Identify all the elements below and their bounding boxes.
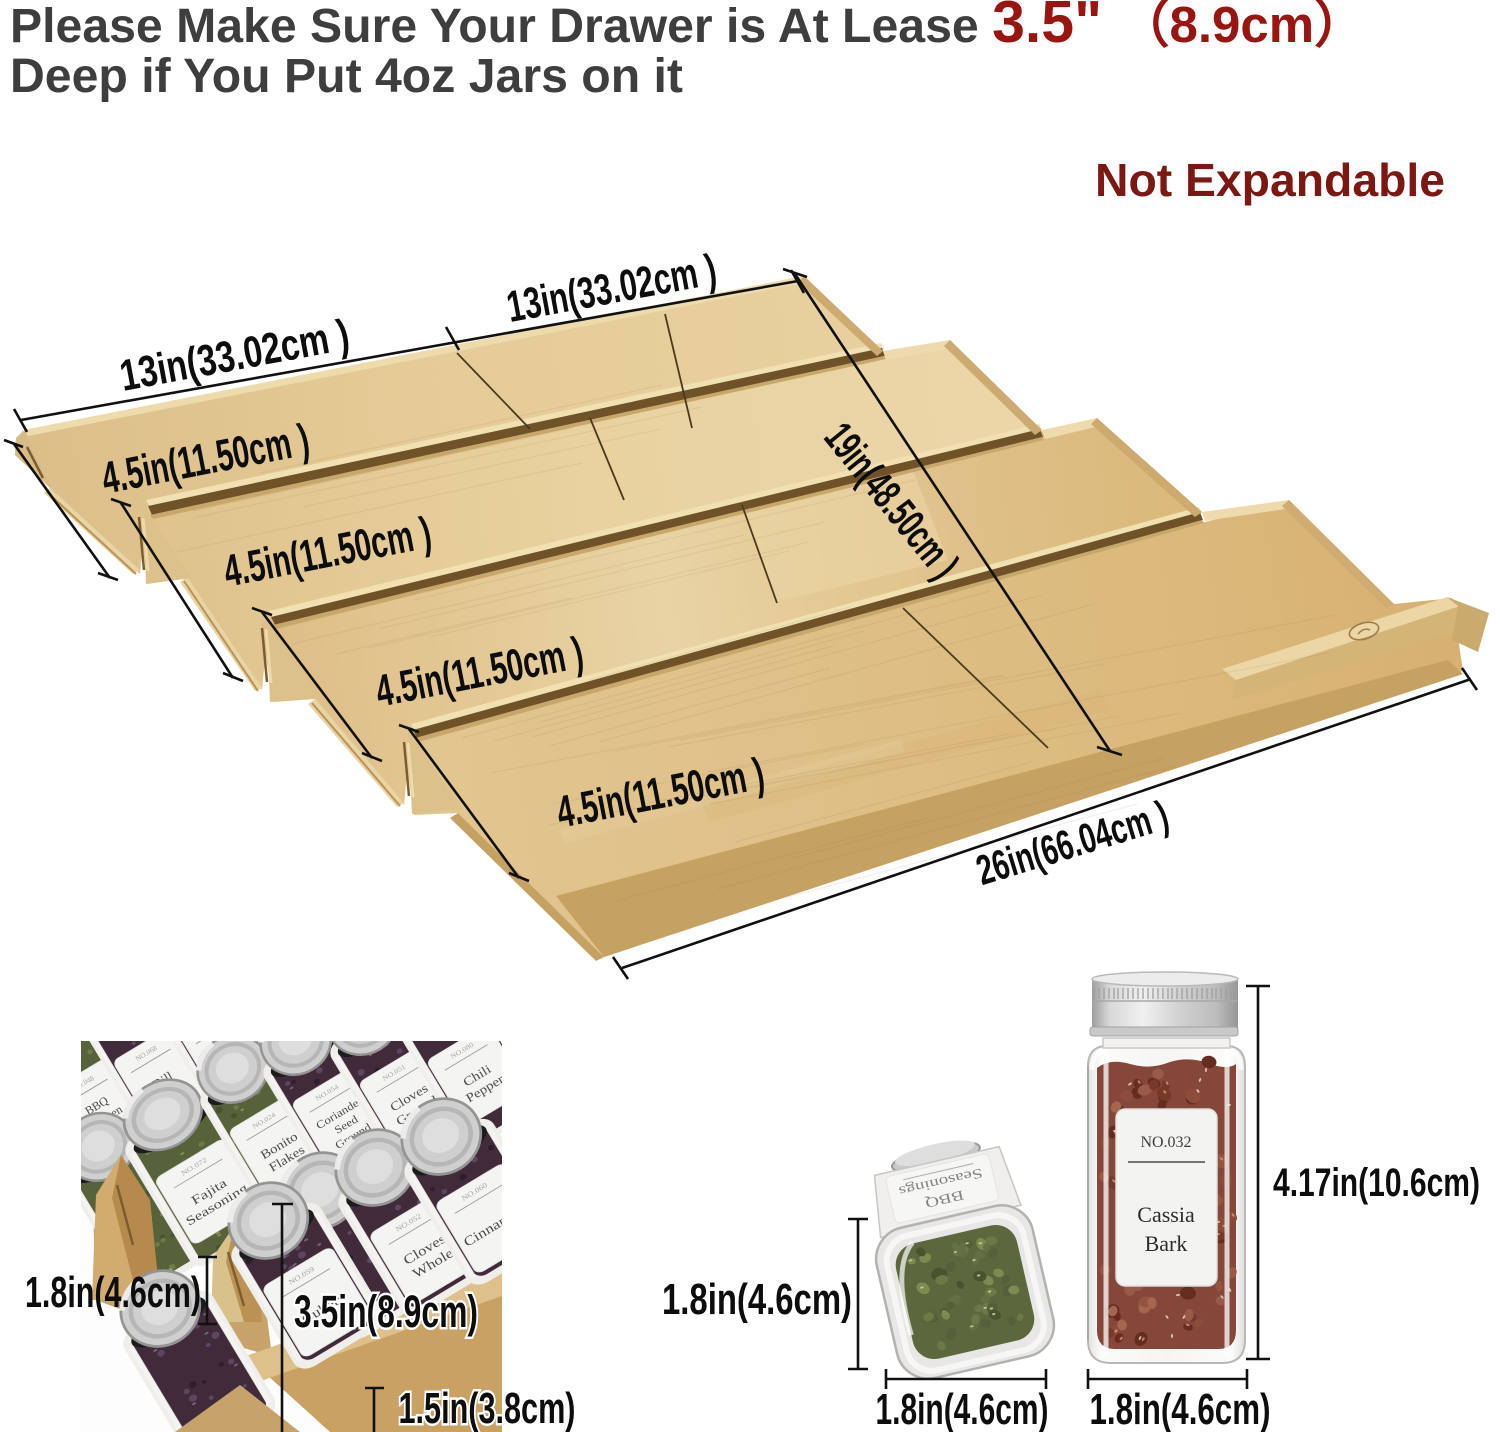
svg-text:Bark: Bark [1145, 1231, 1188, 1256]
svg-text:1.8in(4.6cm): 1.8in(4.6cm) [876, 1385, 1049, 1432]
svg-text:1.5in(3.8cm): 1.5in(3.8cm) [399, 1384, 576, 1432]
svg-text:NO.034: NO.034 [199, 1014, 224, 1034]
svg-text:Not Expandable: Not Expandable [1095, 154, 1445, 206]
svg-text:Please Make Sure Your Drawer i: Please Make Sure Your Drawer is At Lease… [10, 0, 1365, 55]
svg-text:Cassia: Cassia [1137, 1202, 1195, 1227]
svg-text:NO.032: NO.032 [1140, 1134, 1191, 1151]
svg-text:1.8in(4.6cm): 1.8in(4.6cm) [662, 1275, 852, 1324]
svg-text:1.8in(4.6cm): 1.8in(4.6cm) [1090, 1385, 1271, 1432]
svg-text:3.5in(8.9cm): 3.5in(8.9cm) [294, 1286, 478, 1337]
svg-text:Deep if You Put 4oz Jars on it: Deep if You Put 4oz Jars on it [10, 49, 683, 103]
svg-text:1.8in(4.6cm): 1.8in(4.6cm) [25, 1268, 201, 1317]
svg-text:4.17in(10.6cm): 4.17in(10.6cm) [1273, 1161, 1480, 1205]
